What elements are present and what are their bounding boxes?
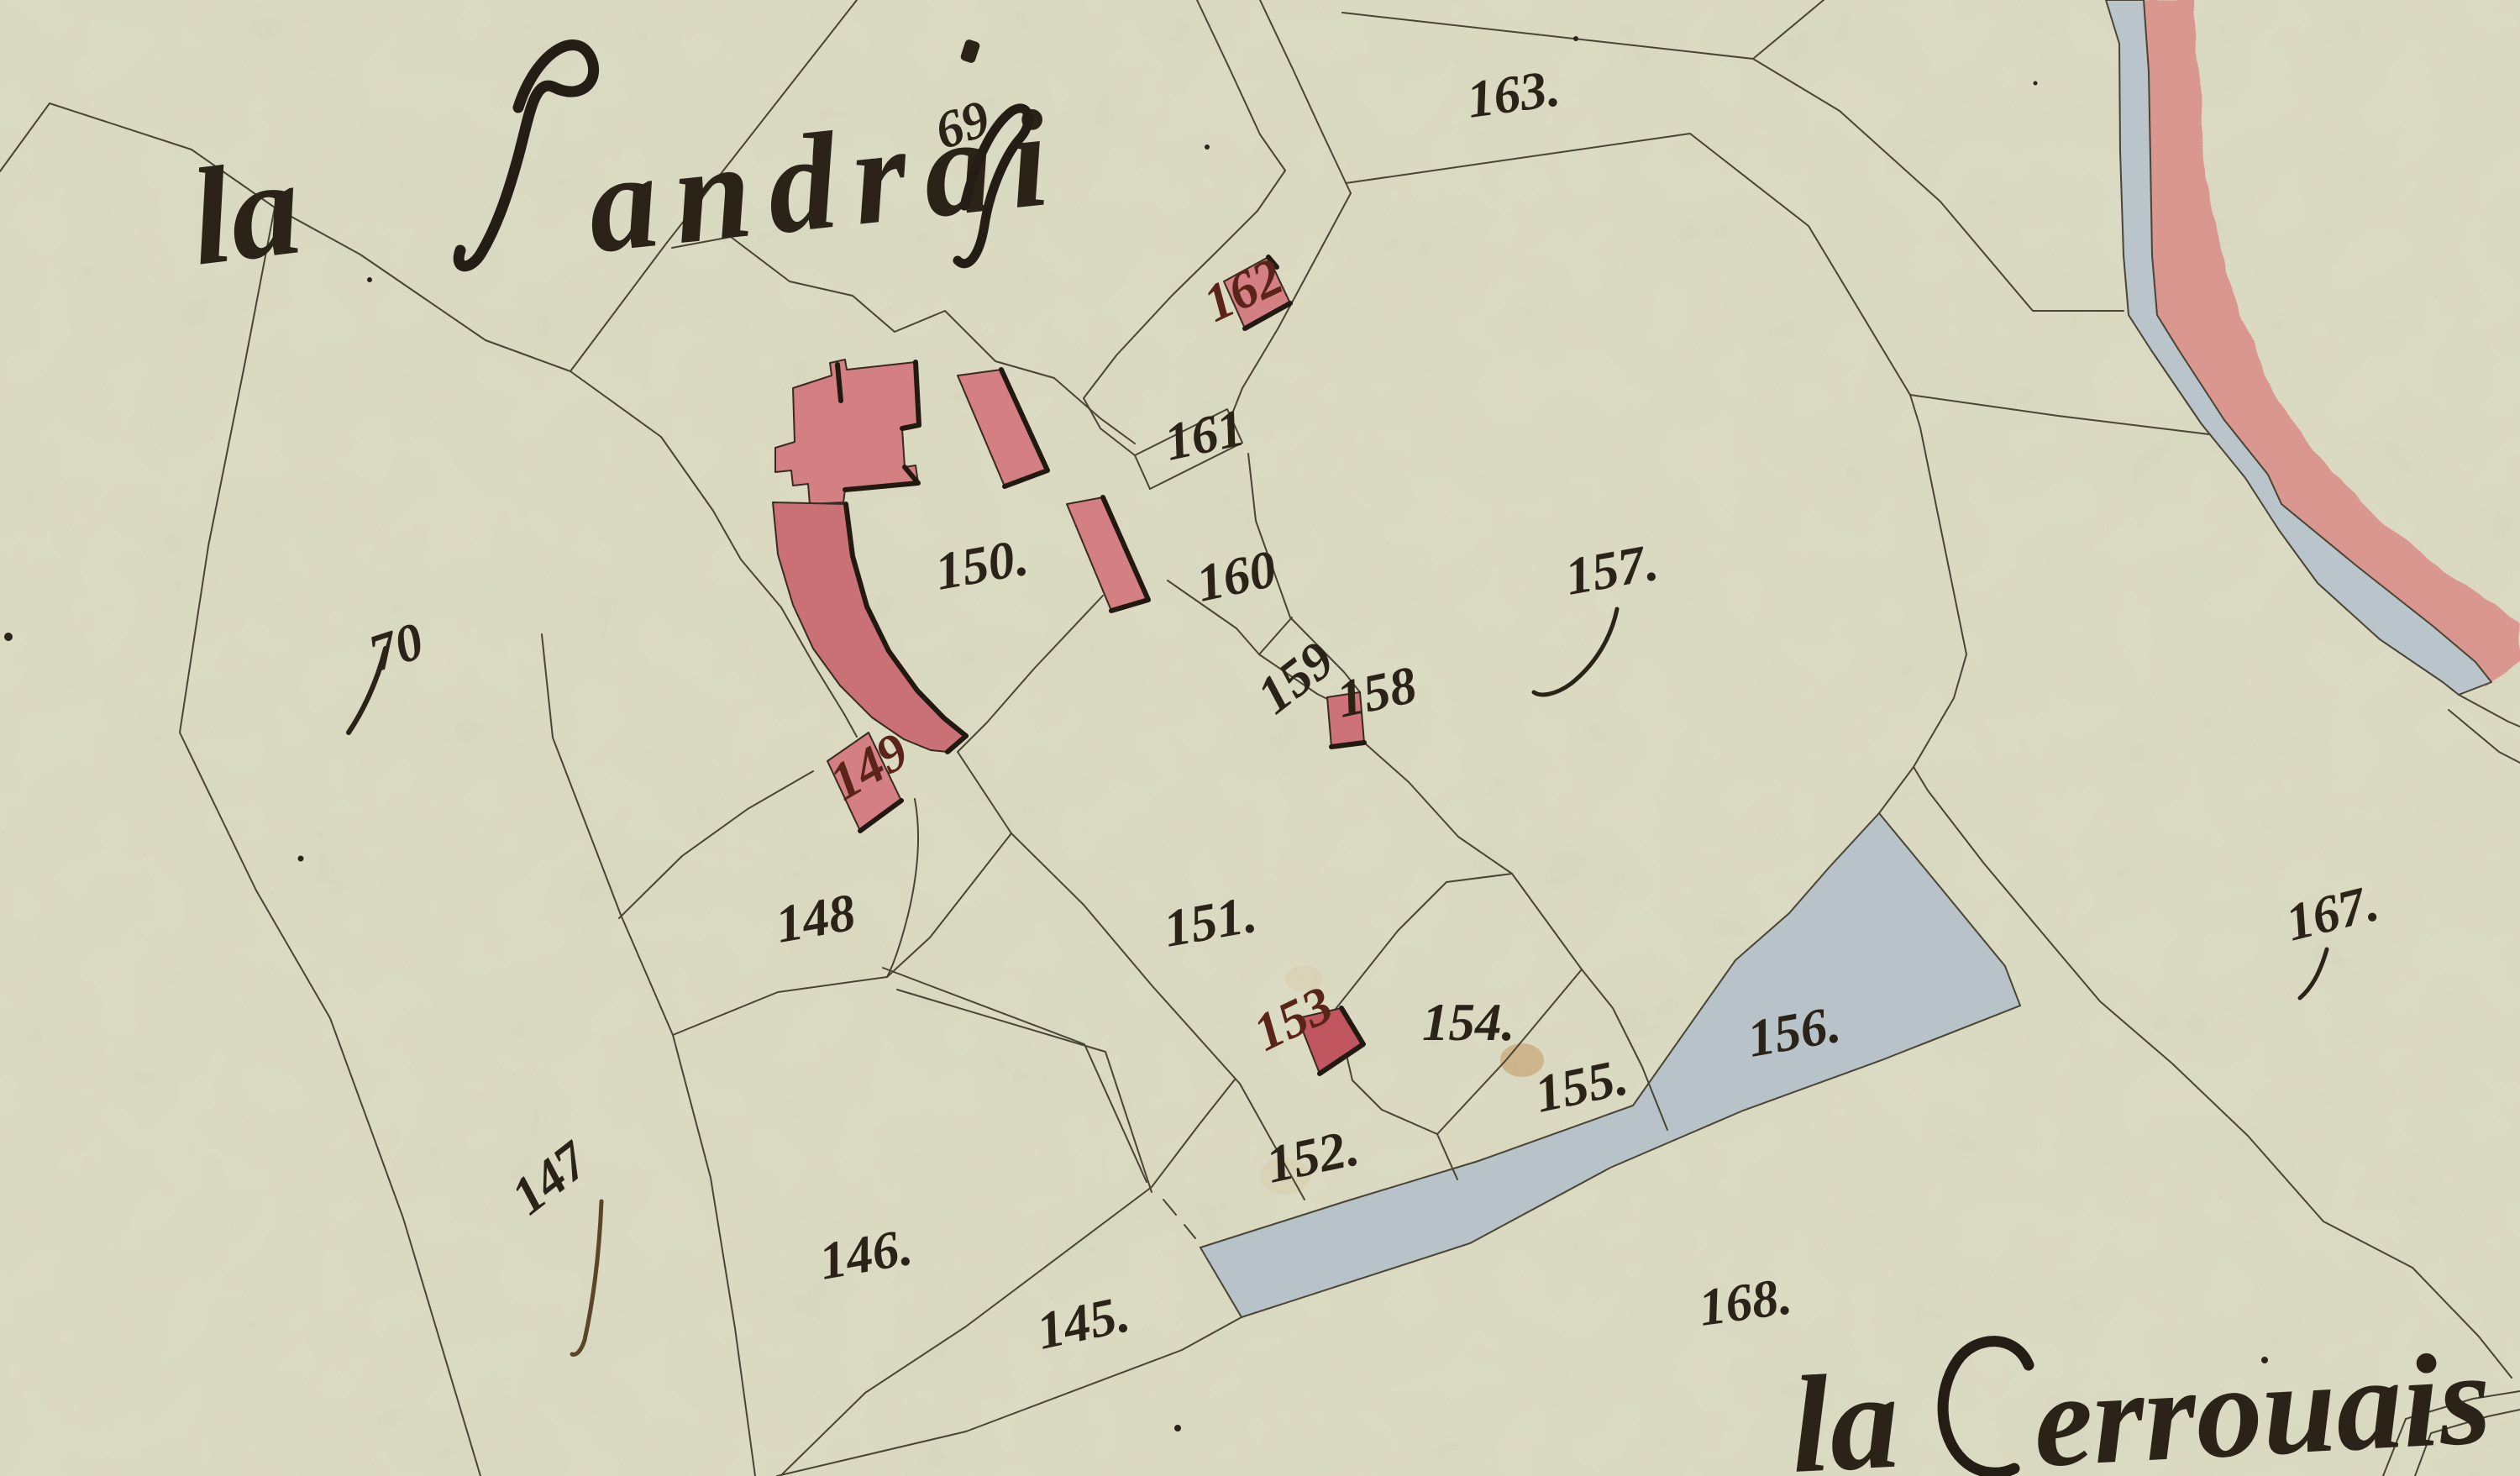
svg-text:errouais: errouais: [2030, 1325, 2495, 1476]
svg-text:la: la: [1787, 1342, 1903, 1476]
svg-text:la: la: [182, 129, 308, 294]
svg-text:154.: 154.: [1422, 993, 1515, 1052]
